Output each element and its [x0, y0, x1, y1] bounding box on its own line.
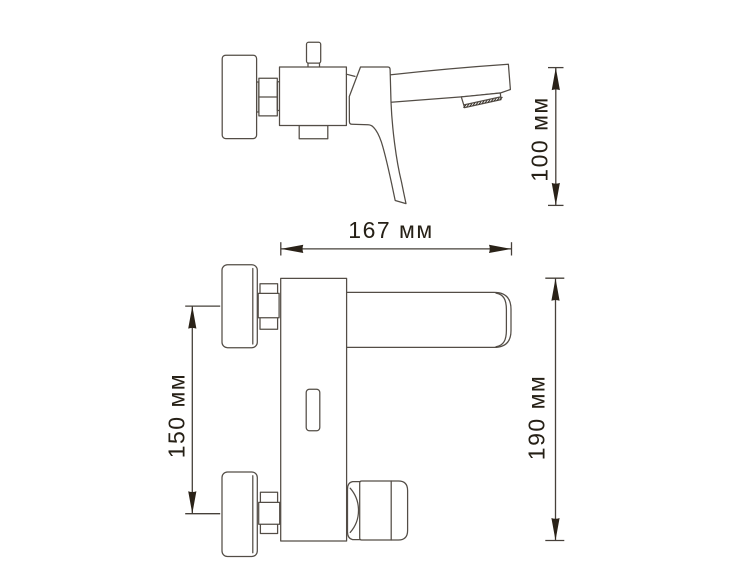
svg-text:100 мм: 100 мм	[527, 96, 553, 181]
svg-text:150 мм: 150 мм	[163, 373, 189, 458]
svg-text:190 мм: 190 мм	[524, 375, 550, 460]
svg-text:167 мм: 167 мм	[348, 217, 433, 243]
